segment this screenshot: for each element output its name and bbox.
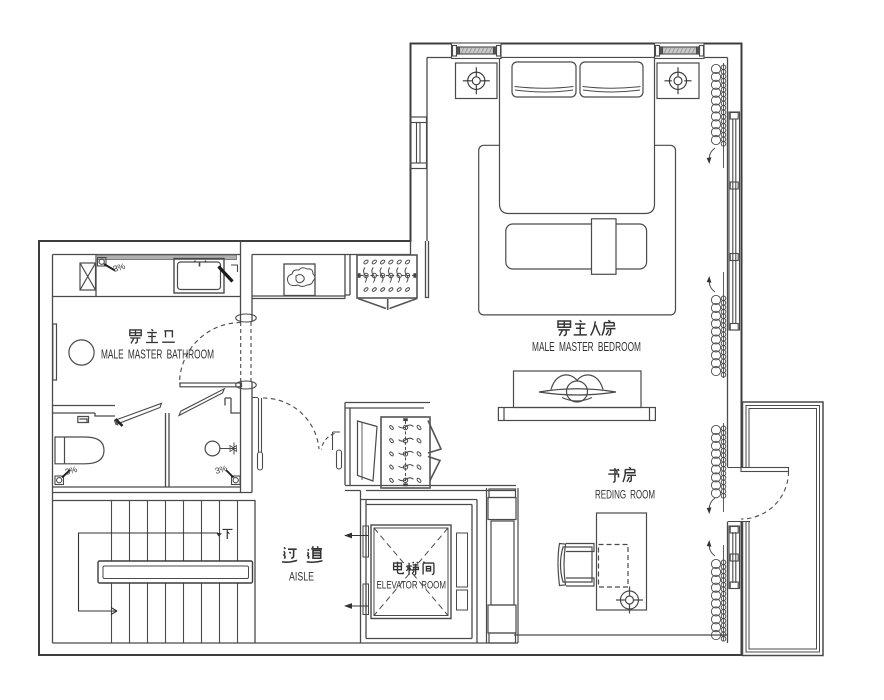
svg-text:MALE MASTER BEDROOM: MALE MASTER BEDROOM	[532, 339, 641, 354]
svg-text:3%: 3%	[64, 464, 79, 477]
svg-text:3%: 3%	[214, 463, 229, 476]
svg-text:REDING ROOM: REDING ROOM	[595, 488, 655, 502]
svg-text:AISLE: AISLE	[289, 572, 314, 584]
svg-text:3%: 3%	[112, 261, 127, 274]
svg-text:MALE MASTER BATHROOM: MALE MASTER BATHROOM	[101, 347, 214, 362]
svg-text:ELEVATOR ROOM: ELEVATOR ROOM	[377, 580, 447, 592]
